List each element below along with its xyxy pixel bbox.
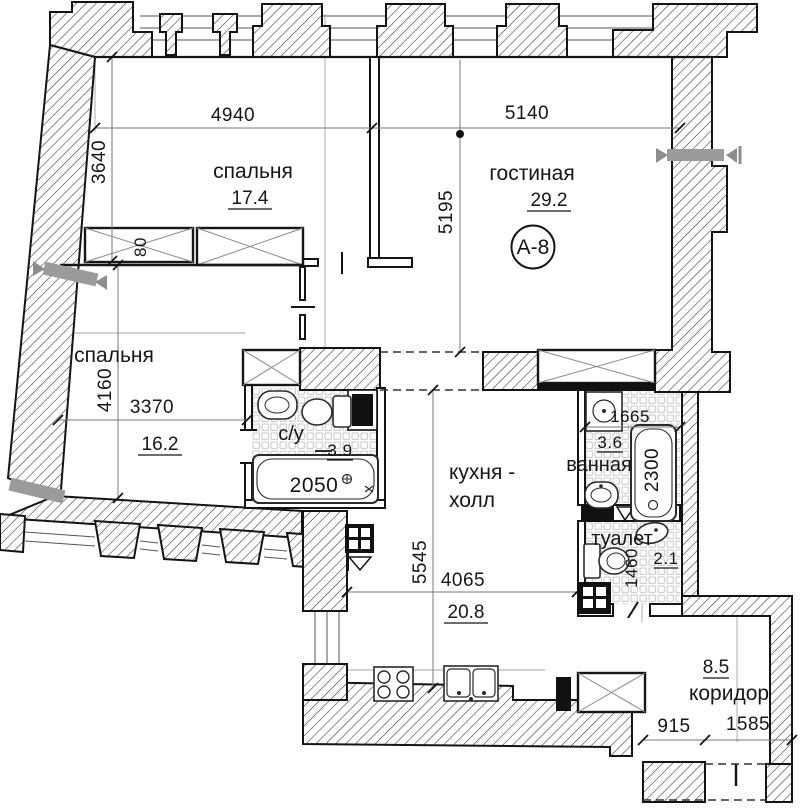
dim-5195: 5195 xyxy=(436,190,457,234)
partition-sanroom-left-b xyxy=(245,463,252,503)
sink-bowl-icon xyxy=(265,397,289,413)
dim-1665: 1665 xyxy=(610,407,650,426)
pilaster-1 xyxy=(0,514,25,552)
dim-4940: 4940 xyxy=(211,105,255,126)
grid-pane xyxy=(349,528,358,537)
dim-5140: 5140 xyxy=(505,103,549,124)
pilaster-4 xyxy=(220,529,264,564)
toilet-bowl-icon xyxy=(302,399,332,425)
pilaster-2 xyxy=(95,521,140,558)
grid-pane xyxy=(583,599,593,608)
lintel-arrow xyxy=(726,148,737,163)
corridor-area: 8.5 xyxy=(703,657,729,678)
burner xyxy=(378,686,390,698)
floor-plan-canvas: А-8 спальня 17.4 гостиная 29.2 спальня 1… xyxy=(0,0,800,808)
gas-triangle-icon xyxy=(349,557,371,570)
pier-big-3 xyxy=(497,4,567,57)
wall-entrance-left xyxy=(643,762,705,802)
wall-living-bottom-left xyxy=(483,352,538,390)
grid-pane xyxy=(583,587,593,596)
dim-3370: 3370 xyxy=(130,397,174,418)
living-area: 29.2 xyxy=(531,190,568,211)
grid-pane xyxy=(361,528,370,537)
survey-dot xyxy=(456,130,464,138)
drain2-icon xyxy=(649,501,658,510)
dim-1460: 1460 xyxy=(622,548,641,588)
grid-pane xyxy=(361,540,370,549)
apartment-badge-label: А-8 xyxy=(517,236,550,259)
sanroom-area: 3.9 xyxy=(327,441,352,460)
wall-entrance-right xyxy=(766,764,792,802)
partition-sanroom-left-a xyxy=(245,383,252,430)
partition-bed2-hall-b xyxy=(300,315,305,339)
burner xyxy=(378,671,390,683)
dim-1585: 1585 xyxy=(726,714,770,735)
pier-big-2 xyxy=(377,4,453,57)
wall-right xyxy=(655,57,730,392)
wall-top-right-corner xyxy=(613,4,757,57)
grid-pane xyxy=(349,540,358,549)
kitchen-area: 20.8 xyxy=(448,602,485,623)
bedroom1-area: 17.4 xyxy=(232,188,269,209)
burner xyxy=(397,671,409,683)
partition-bath-west xyxy=(578,390,585,505)
floor-plan-drawing: А-8 спальня 17.4 гостиная 29.2 спальня 1… xyxy=(0,0,800,808)
partition-hall-stub xyxy=(368,258,412,267)
dim-2300: 2300 xyxy=(642,448,663,492)
grid-pane xyxy=(596,587,606,596)
wc-area: 2.1 xyxy=(653,549,678,568)
toilet-tank-icon xyxy=(333,396,351,427)
bathroom-label: ванная xyxy=(566,454,632,476)
bath-sink-bowl xyxy=(591,488,611,502)
pier-small-2 xyxy=(213,14,237,55)
wall-kitchen-left-lower xyxy=(303,664,347,700)
corridor-label: коридор xyxy=(689,682,769,705)
dim-4065: 4065 xyxy=(441,570,485,591)
vent-shaft-sanroom xyxy=(352,394,373,426)
wc-label: туалет xyxy=(591,528,653,550)
lintel-arrow xyxy=(656,148,668,163)
wall-kitchen-left-upper xyxy=(303,511,347,611)
pier-small-1 xyxy=(160,14,182,55)
partition-bed2-hall-a xyxy=(300,267,305,300)
kitchen-label-line2: холл xyxy=(449,489,495,512)
dim-5545: 5545 xyxy=(410,540,431,584)
pier-big-1 xyxy=(253,4,330,57)
kitchen-door-leaf xyxy=(556,677,571,711)
bedroom2-area: 16.2 xyxy=(142,434,179,455)
grid-panel-wc xyxy=(578,582,611,614)
dim-80: 80 xyxy=(131,237,150,257)
bedroom1-label: спальня xyxy=(213,160,293,183)
pier-hall xyxy=(300,348,380,390)
bedroom2-label: спальня xyxy=(74,344,154,367)
living-label: гостиная xyxy=(489,162,574,185)
kitchen-label-line1: кухня - xyxy=(449,461,515,484)
dim-4160: 4160 xyxy=(95,368,116,412)
partition-hall-left xyxy=(303,259,318,266)
grid-pane xyxy=(596,599,606,608)
living-south-sill xyxy=(538,383,655,391)
dim-2050: 2050 xyxy=(290,474,339,497)
partition-bed1-living xyxy=(370,57,379,263)
dim-915: 915 xyxy=(657,716,690,737)
partition-wc-bottom-right xyxy=(650,604,682,616)
bathroom-area: 3.6 xyxy=(597,433,622,452)
pilaster-3 xyxy=(158,525,202,561)
burner xyxy=(397,686,409,698)
sanroom-label: с/у xyxy=(278,423,304,445)
dim-3640: 3640 xyxy=(89,140,110,184)
